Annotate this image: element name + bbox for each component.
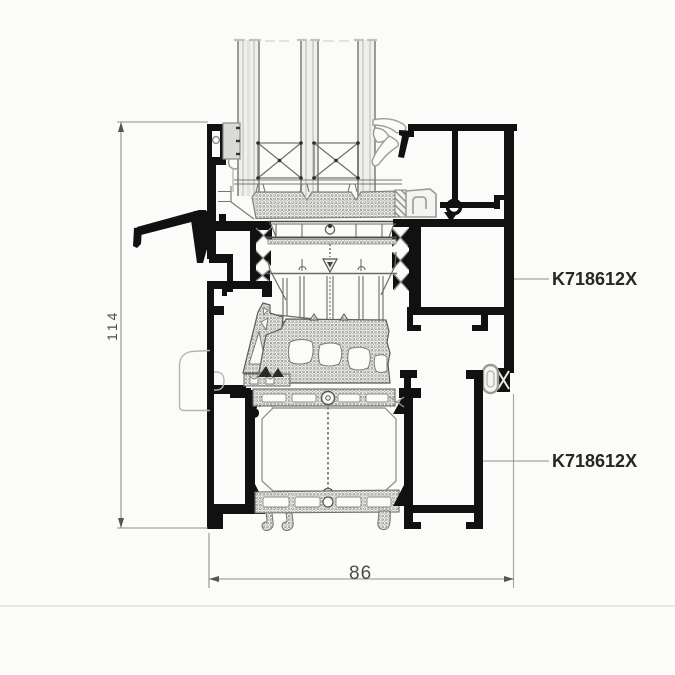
svg-text:K718612X: K718612X (552, 269, 637, 289)
svg-text:86: 86 (349, 563, 372, 584)
svg-text:K718612X: K718612X (552, 451, 637, 471)
svg-text:114: 114 (104, 310, 120, 341)
